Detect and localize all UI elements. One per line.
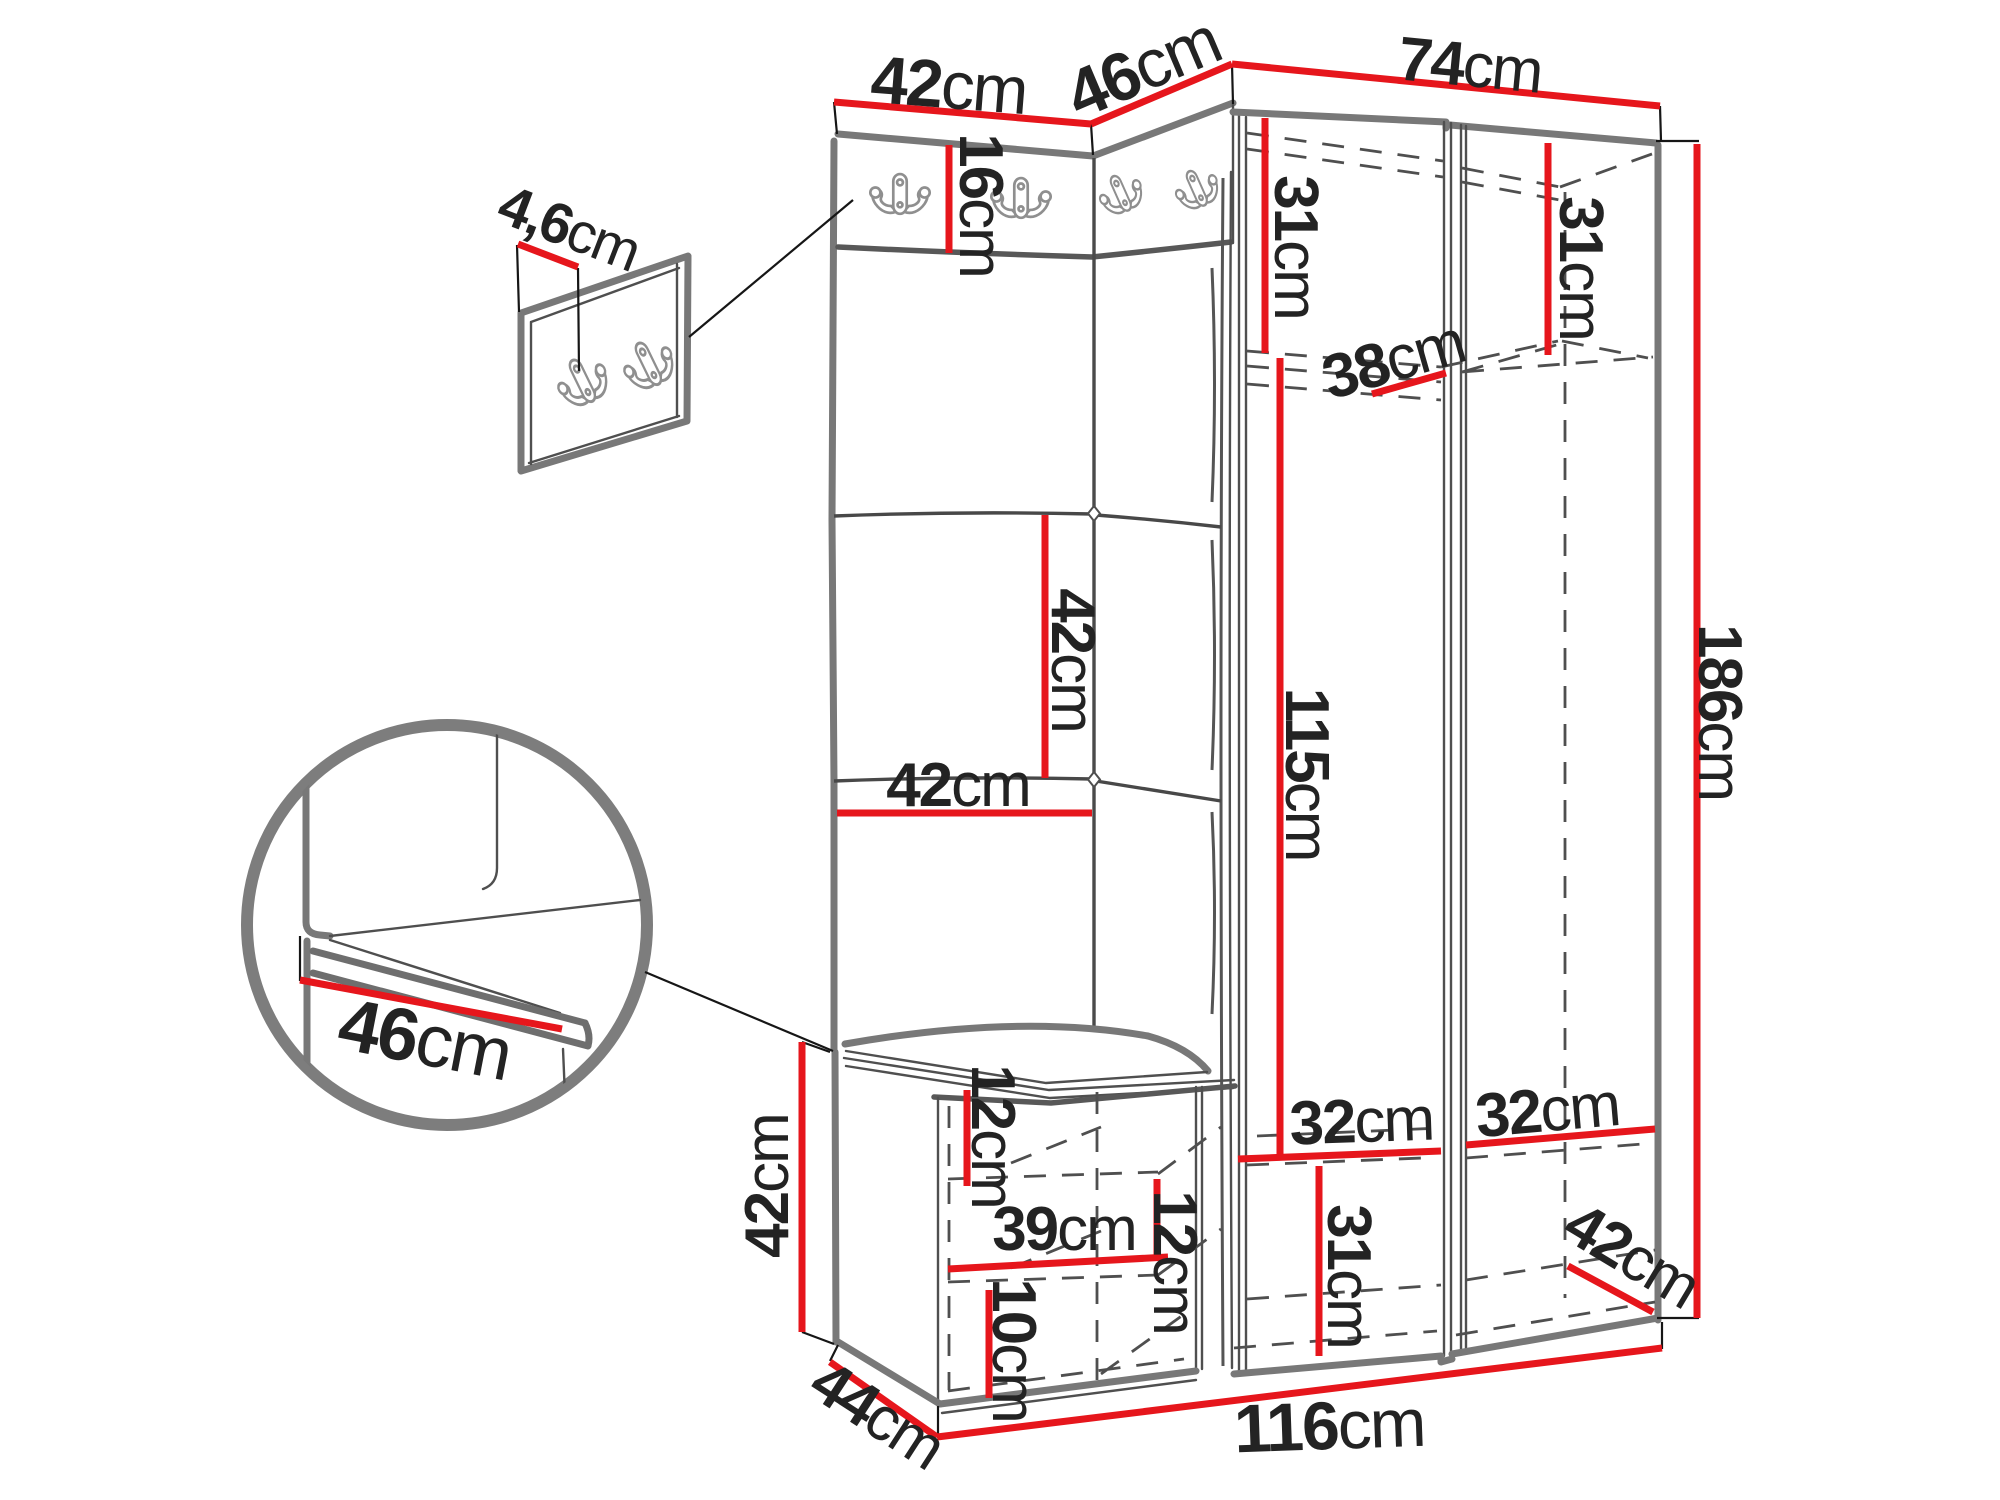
- svg-text:32cm: 32cm: [1473, 1070, 1622, 1151]
- svg-text:10cm: 10cm: [979, 1278, 1048, 1422]
- svg-text:115cm: 115cm: [1272, 688, 1341, 861]
- svg-text:12cm: 12cm: [958, 1064, 1027, 1208]
- svg-text:39cm: 39cm: [992, 1195, 1136, 1264]
- svg-text:74cm: 74cm: [1395, 24, 1545, 106]
- svg-text:42cm: 42cm: [868, 42, 1029, 129]
- svg-text:42cm: 42cm: [886, 751, 1030, 820]
- svg-text:42cm: 42cm: [1038, 588, 1107, 732]
- svg-text:16cm: 16cm: [946, 133, 1015, 277]
- svg-text:116cm: 116cm: [1233, 1385, 1426, 1468]
- svg-text:31cm: 31cm: [1261, 175, 1330, 319]
- svg-text:31cm: 31cm: [1546, 196, 1615, 340]
- svg-text:42cm: 42cm: [733, 1114, 802, 1258]
- svg-text:186cm: 186cm: [1685, 624, 1754, 800]
- svg-text:12cm: 12cm: [1140, 1190, 1209, 1334]
- svg-text:31cm: 31cm: [1314, 1204, 1383, 1348]
- svg-text:32cm: 32cm: [1288, 1085, 1434, 1159]
